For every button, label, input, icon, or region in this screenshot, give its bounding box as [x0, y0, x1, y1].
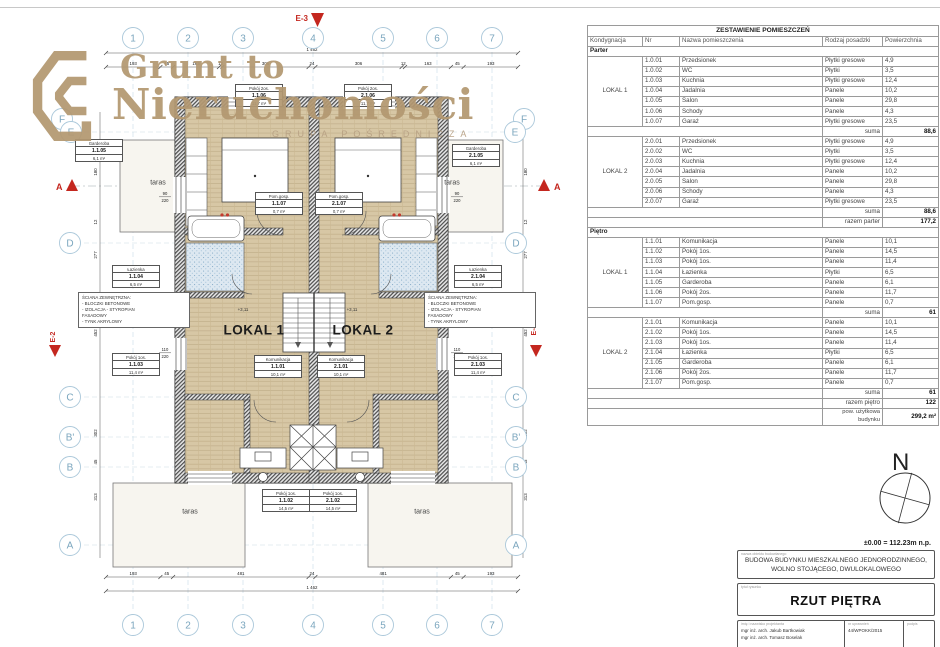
- svg-text:45: 45: [93, 459, 98, 464]
- wall-note-left: ŚCIANA ZEWNĘTRZNA: - BLOCZKI BETONOWE - …: [78, 292, 190, 328]
- designers-box: imię i nazwisko projektanta mgr inż. arc…: [737, 620, 935, 647]
- svg-text:D: D: [66, 239, 73, 250]
- schedule-title: ZESTAWIENIE POMIESZCZEŃ: [588, 26, 939, 37]
- svg-text:481: 481: [379, 571, 387, 576]
- shaft: [290, 425, 336, 470]
- svg-text:452: 452: [93, 329, 98, 337]
- svg-text:24: 24: [310, 571, 315, 576]
- svg-text:3: 3: [240, 34, 246, 45]
- room-label-1.1.06: Pokój 2os.1.1.0611,7 m²: [235, 84, 283, 107]
- svg-text:1: 1: [130, 34, 136, 45]
- schedule-suma-row: suma88,6: [588, 207, 939, 217]
- svg-text:220: 220: [454, 198, 462, 203]
- svg-text:1 462: 1 462: [307, 585, 319, 590]
- svg-text:193: 193: [130, 571, 138, 576]
- svg-text:45: 45: [164, 571, 169, 576]
- elevation-reference: ±0.00 = 112.23m n.p.: [737, 540, 931, 547]
- grid-bubble: 3: [233, 28, 254, 49]
- room-label-2.1.03: Pokój 1os.2.1.0311,4 m²: [454, 353, 502, 376]
- grid-bubble: 3: [233, 615, 254, 636]
- grid-bubble: 4: [303, 28, 324, 49]
- room-label-1.1.02: Pokój 1os.1.1.0214,5 m²: [262, 489, 310, 512]
- room-label-2.1.01: Komunikacja2.1.0110,1 m²: [317, 355, 365, 378]
- drawing-title-box: tytuł rysunku RZUT PIĘTRA: [737, 583, 935, 616]
- grid-bubble: C: [506, 387, 527, 408]
- room-label-2.1.04: Łazienka2.1.046,5 m²: [454, 265, 502, 288]
- svg-text:12: 12: [523, 219, 528, 224]
- titleblock: ±0.00 = 112.23m n.p. nazwa obiektu budow…: [737, 540, 935, 647]
- project-label: nazwa obiektu budowlanego: [741, 552, 786, 556]
- svg-text:7: 7: [489, 621, 495, 632]
- designer-name: mgr inż. arch. Jakub Bartkowiak: [741, 628, 841, 635]
- floor-plan: +3,11 +3,11 E-3 A A E-2 E-4 1 4621934516…: [0, 0, 585, 647]
- permit-number: 44/WPOKK/2015: [848, 628, 900, 635]
- room-label-1.1.03: Pokój 1os.1.1.0311,4 m²: [112, 353, 160, 376]
- grid-bubble: D: [60, 233, 81, 254]
- drawing-sheet: { "logo": { "line1": "Grunt to", "line2"…: [0, 0, 940, 647]
- drawing-label: tytuł rysunku: [741, 585, 761, 589]
- room-label-2.1.05: Garderoba2.1.056,1 m²: [452, 144, 500, 167]
- drawing-title: RZUT PIĘTRA: [738, 584, 934, 615]
- svg-text:3: 3: [240, 621, 246, 632]
- bathroom-right: [379, 243, 437, 291]
- grid-bubble: B': [60, 427, 81, 448]
- schedule-row: LOKAL 11.0.01PrzedsionekPłytki gresowe4,…: [588, 56, 939, 66]
- taras-label: taras: [182, 509, 198, 516]
- svg-text:193: 193: [130, 61, 138, 66]
- svg-text:6: 6: [434, 621, 440, 632]
- svg-text:193: 193: [487, 571, 495, 576]
- svg-text:5: 5: [380, 34, 386, 45]
- schedule-header: KondygnacjaNrNazwa pomieszczeniaRodzaj p…: [588, 36, 939, 46]
- room-label-2.1.06: Pokój 2os.2.1.0611,7 m²: [344, 84, 392, 107]
- unit-cell: LOKAL 1: [588, 56, 643, 126]
- svg-text:2: 2: [185, 621, 191, 632]
- grid-bubble: 5: [373, 28, 394, 49]
- svg-text:A: A: [67, 541, 74, 552]
- grid-bubble: E: [505, 122, 526, 143]
- unit-cell: LOKAL 2: [588, 318, 643, 388]
- svg-text:5: 5: [380, 621, 386, 632]
- svg-text:306: 306: [262, 61, 270, 66]
- svg-text:E: E: [68, 128, 75, 139]
- svg-text:45: 45: [455, 61, 460, 66]
- grid-bubble: 6: [427, 615, 448, 636]
- unit-label-lokal1: LOKAL 1: [223, 323, 284, 338]
- grid-bubble: A: [506, 535, 527, 556]
- bathroom-left: [186, 243, 244, 291]
- svg-text:C: C: [66, 393, 73, 404]
- svg-text:110: 110: [162, 347, 169, 352]
- grid-bubble: 2: [178, 28, 199, 49]
- svg-text:481: 481: [237, 571, 245, 576]
- marker-e2-label: E-2: [50, 331, 57, 342]
- bathtub-left: [188, 216, 244, 241]
- svg-text:220: 220: [162, 354, 170, 359]
- elevation-mark: +3,11: [238, 307, 249, 312]
- schedule-suma-row: suma61: [588, 388, 939, 398]
- unit-cell: LOKAL 1: [588, 237, 643, 307]
- grid-bubble: D: [506, 233, 527, 254]
- svg-text:B: B: [513, 463, 520, 474]
- svg-text:180: 180: [523, 168, 528, 176]
- svg-text:1: 1: [130, 621, 136, 632]
- designer-name: mgr inż. arch. Tomasz Boselak: [741, 635, 841, 642]
- project-name-box: nazwa obiektu budowlanego Budowa budynku…: [737, 550, 935, 579]
- grid-bubble: C: [60, 387, 81, 408]
- grid-bubble: 2: [178, 615, 199, 636]
- svg-text:302: 302: [93, 429, 98, 437]
- unit-cell: LOKAL 2: [588, 137, 643, 207]
- svg-text:E: E: [512, 128, 519, 139]
- north-compass-icon: N: [868, 448, 940, 530]
- grid-bubble: 1: [123, 28, 144, 49]
- grid-bubble: 4: [303, 615, 324, 636]
- svg-text:90: 90: [163, 191, 168, 196]
- schedule-footer-row: pow. użytkowa budynku299,2 m²: [588, 408, 939, 425]
- svg-text:220: 220: [162, 198, 170, 203]
- room-label-2.1.02: Pokój 1os.2.1.0214,5 m²: [309, 489, 357, 512]
- schedule-suma-row: suma61: [588, 308, 939, 318]
- svg-text:306: 306: [355, 61, 363, 66]
- svg-text:B': B': [66, 433, 75, 444]
- svg-text:163: 163: [424, 61, 432, 66]
- grid-bubble: A: [60, 535, 81, 556]
- room-schedule-table: ZESTAWIENIE POMIESZCZEŃKondygnacjaNrNazw…: [587, 25, 939, 426]
- grid-bubble: B: [60, 457, 81, 478]
- svg-text:2: 2: [185, 34, 191, 45]
- marker-a-right: A: [554, 182, 561, 192]
- svg-text:24: 24: [310, 61, 315, 66]
- svg-text:12: 12: [401, 61, 406, 66]
- svg-text:6: 6: [434, 34, 440, 45]
- svg-text:4: 4: [310, 34, 316, 45]
- svg-text:110: 110: [454, 347, 461, 352]
- schedule-section: Parter: [588, 46, 939, 56]
- svg-text:313: 313: [523, 493, 528, 501]
- grid-bubble: 7: [482, 28, 503, 49]
- wardrobe-right: [416, 138, 437, 226]
- schedule-suma-row: suma88,6: [588, 127, 939, 137]
- svg-text:B: B: [67, 463, 74, 474]
- marker-e3-label: E-3: [296, 14, 309, 23]
- grid-bubble: 7: [482, 615, 503, 636]
- unit-label-lokal2: LOKAL 2: [332, 323, 393, 338]
- room-label-1.1.01: Komunikacja1.1.0110,1 m²: [254, 355, 302, 378]
- svg-text:12: 12: [218, 61, 223, 66]
- svg-text:277: 277: [93, 251, 98, 259]
- wall-note-right: ŚCIANA ZEWNĘTRZNA: - BLOCZKI BETONOWE - …: [424, 292, 536, 328]
- grid-bubble: 1: [123, 615, 144, 636]
- svg-text:163: 163: [192, 61, 200, 66]
- room-label-1.1.07: Pom.gosp.1.1.070,7 m²: [255, 192, 303, 215]
- schedule-row: LOKAL 11.1.01KomunikacjaPanele10,1: [588, 237, 939, 247]
- designers-cell: imię i nazwisko projektanta mgr inż. arc…: [738, 621, 845, 647]
- svg-text:B': B': [512, 433, 521, 444]
- marker-a-left: A: [56, 182, 63, 192]
- schedule-total-row: razem piętro122: [588, 398, 939, 408]
- bathtub-right: [379, 216, 435, 241]
- svg-text:4: 4: [310, 621, 316, 632]
- permit-cell: nr uprawnień 44/WPOKK/2015: [845, 621, 904, 647]
- svg-text:277: 277: [523, 251, 528, 259]
- wardrobe-left: [186, 138, 207, 226]
- svg-text:45: 45: [455, 571, 460, 576]
- schedule-total-row: razem parter177,2: [588, 217, 939, 227]
- svg-text:180: 180: [93, 168, 98, 176]
- grid-bubble: B': [506, 427, 527, 448]
- elevation-mark: +3,11: [347, 307, 358, 312]
- svg-text:45: 45: [164, 61, 169, 66]
- room-label-1.1.05: Garderoba1.1.056,1 m²: [75, 139, 123, 162]
- north-letter: N: [892, 449, 909, 476]
- svg-text:193: 193: [487, 61, 495, 66]
- schedule-section: Piętro: [588, 227, 939, 237]
- svg-text:7: 7: [489, 34, 495, 45]
- grid-bubble: 6: [427, 28, 448, 49]
- schedule-row: LOKAL 22.0.01PrzedsionekPłytki gresowe4,…: [588, 137, 939, 147]
- schedule-row: LOKAL 22.1.01KomunikacjaPanele10,1: [588, 318, 939, 328]
- room-label-2.1.07: Pom.gosp.2.1.070,7 m²: [315, 192, 363, 215]
- svg-text:C: C: [512, 393, 519, 404]
- room-label-1.1.04: Łazienka1.1.046,5 m²: [112, 265, 160, 288]
- taras-label: taras: [414, 509, 430, 516]
- svg-text:313: 313: [93, 493, 98, 501]
- svg-text:90: 90: [455, 191, 460, 196]
- taras-label: taras: [150, 180, 166, 187]
- svg-text:A: A: [513, 541, 520, 552]
- taras-label: taras: [444, 180, 460, 187]
- signature-cell: podpis: [904, 621, 940, 647]
- svg-text:D: D: [512, 239, 519, 250]
- svg-text:452: 452: [523, 329, 528, 337]
- grid-bubble: B: [506, 457, 527, 478]
- grid-bubble: 5: [373, 615, 394, 636]
- svg-text:12: 12: [93, 219, 98, 224]
